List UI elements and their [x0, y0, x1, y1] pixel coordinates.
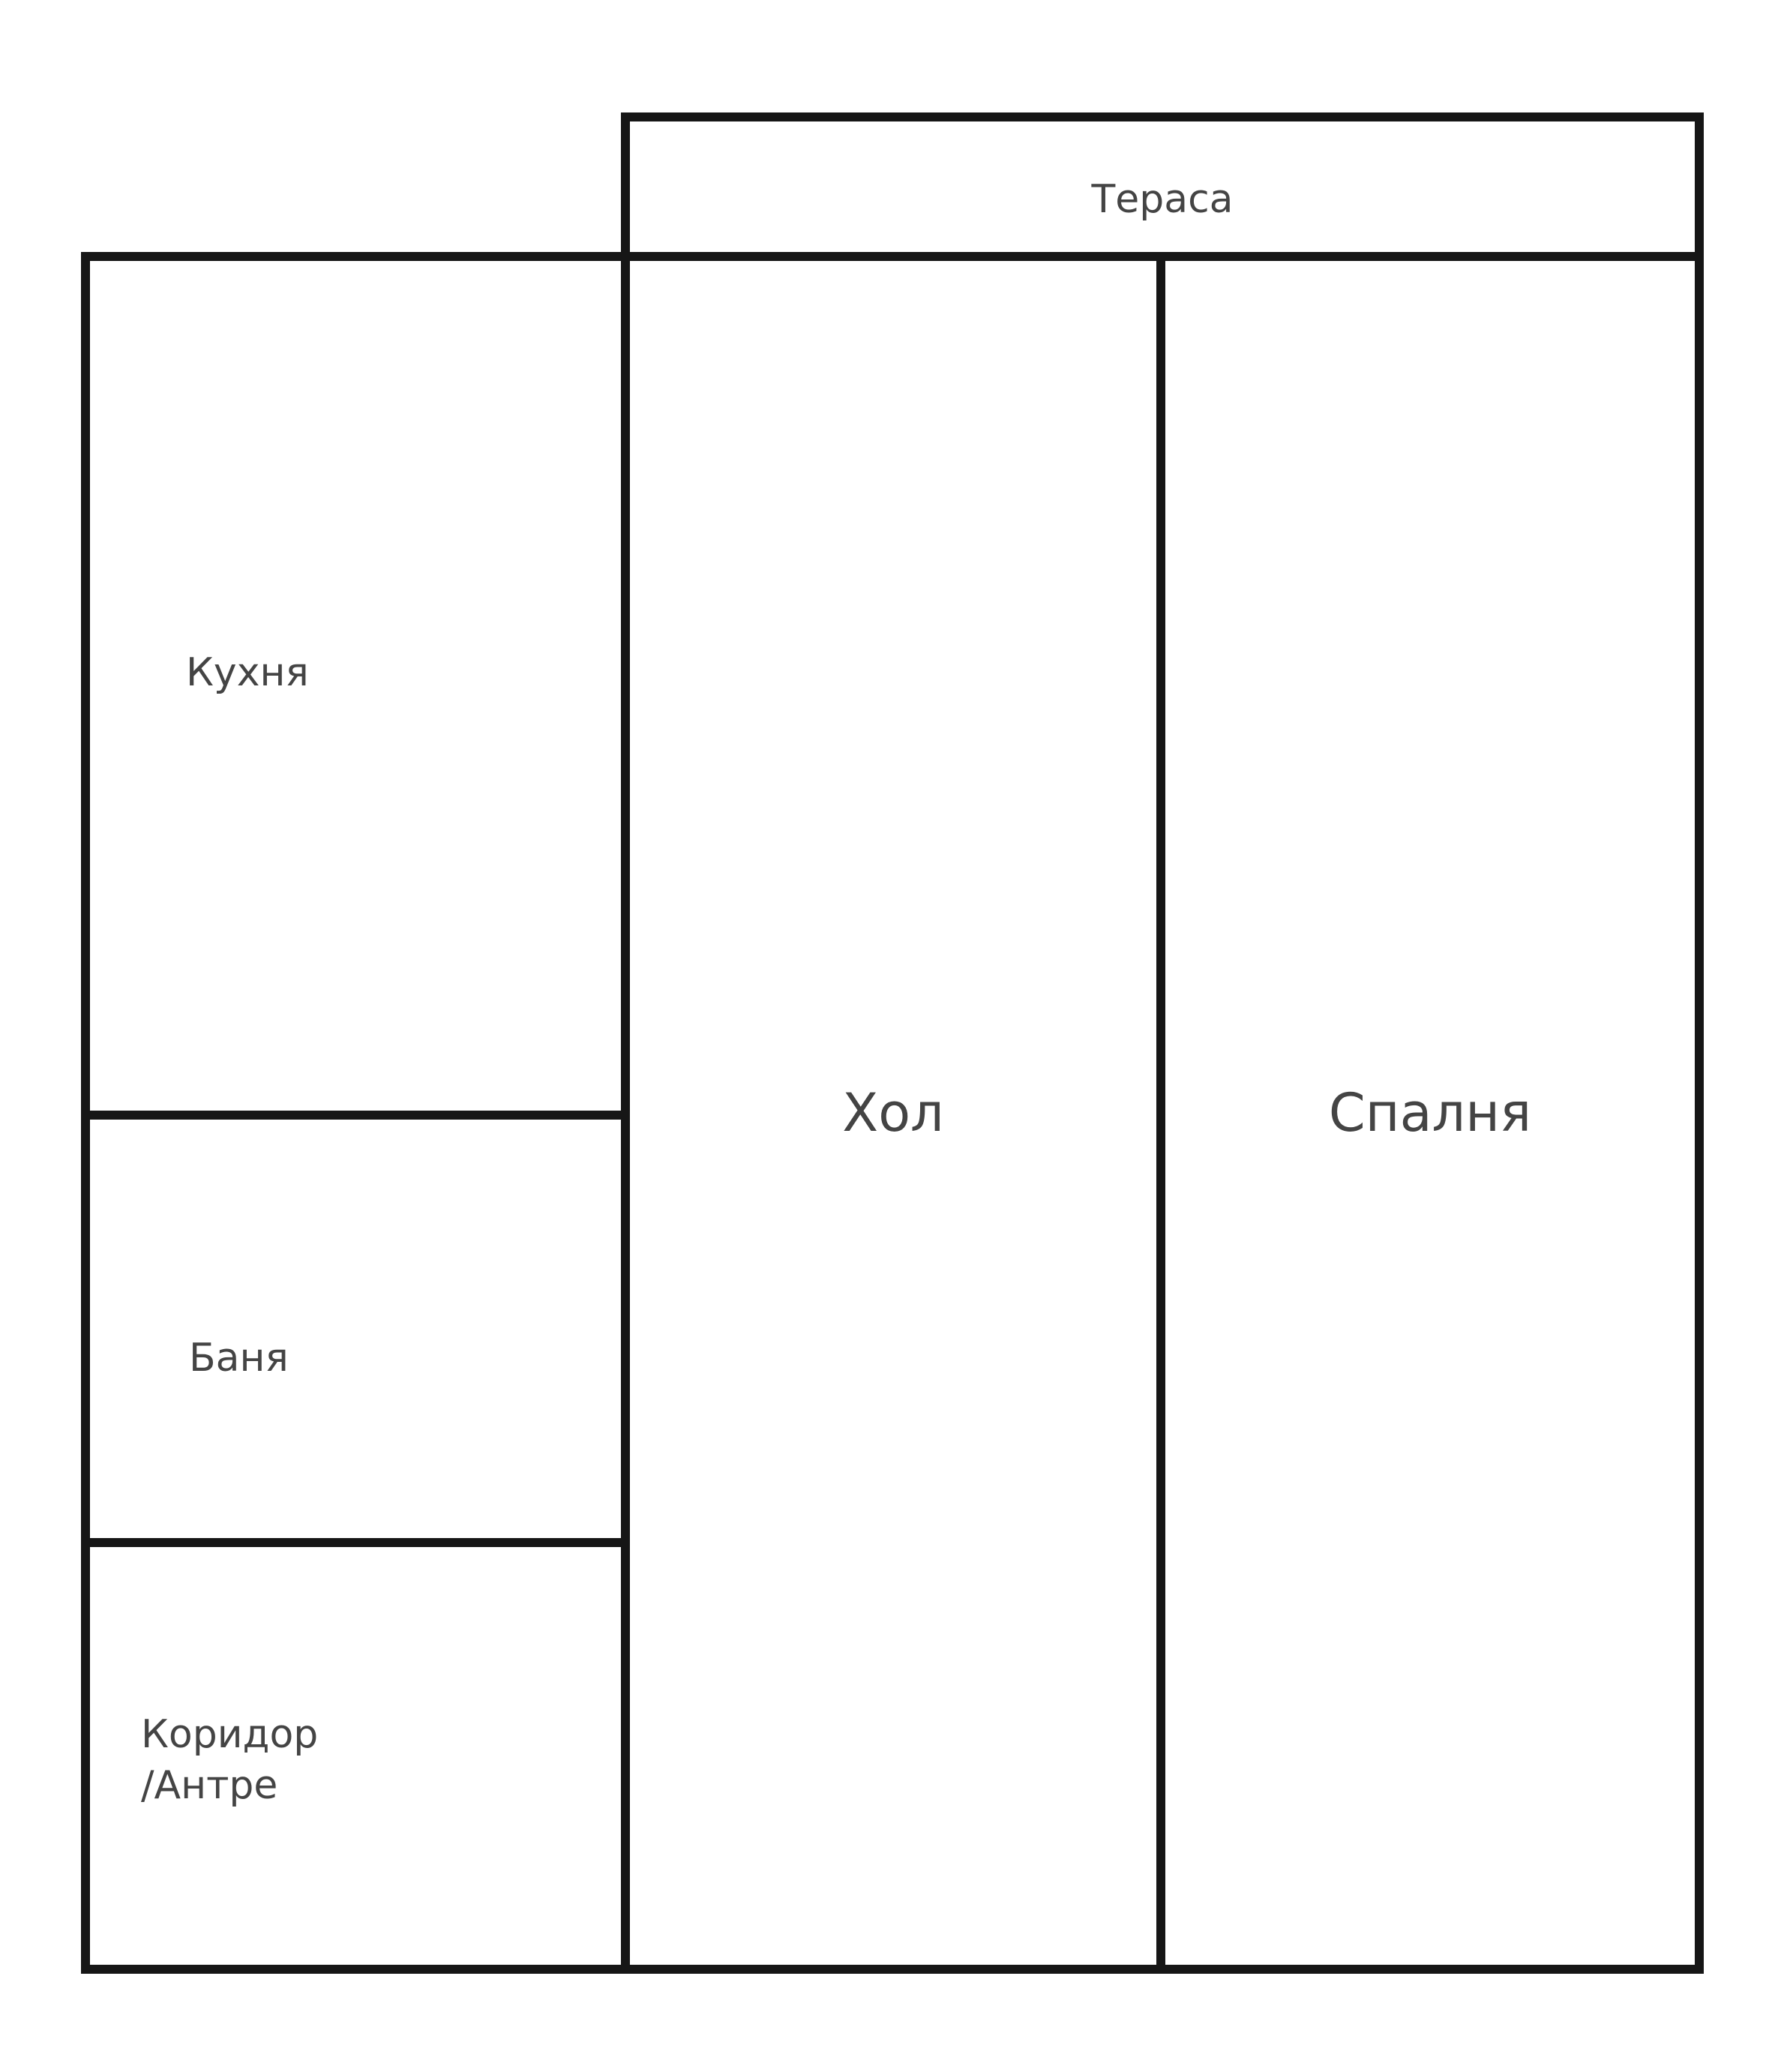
room-label-corridor-line1: Коридор — [141, 1712, 318, 1757]
room-terrace: Тераса — [621, 112, 1704, 253]
room-hall: Хол — [630, 261, 1156, 1965]
room-label-hall: Хол — [842, 1082, 944, 1144]
room-label-corridor: Коридор/Антре — [141, 1710, 318, 1811]
room-label-kitchen: Кухня — [186, 648, 309, 699]
room-label-terrace: Тераса — [1091, 175, 1233, 226]
floor-plan: Тераса Кухня Баня Коридор/Антре Хол Спал… — [0, 0, 1781, 2072]
room-bedroom: Спалня — [1165, 261, 1695, 1965]
room-label-bath: Баня — [189, 1333, 289, 1384]
room-label-corridor-line2: /Антре — [141, 1763, 277, 1808]
wall-kitchen-bath-divider — [81, 1111, 630, 1120]
wall-bath-corridor-divider — [81, 1538, 630, 1547]
room-label-bedroom: Спалня — [1329, 1082, 1531, 1144]
wall-hall-bedroom-divider — [1156, 252, 1165, 1974]
